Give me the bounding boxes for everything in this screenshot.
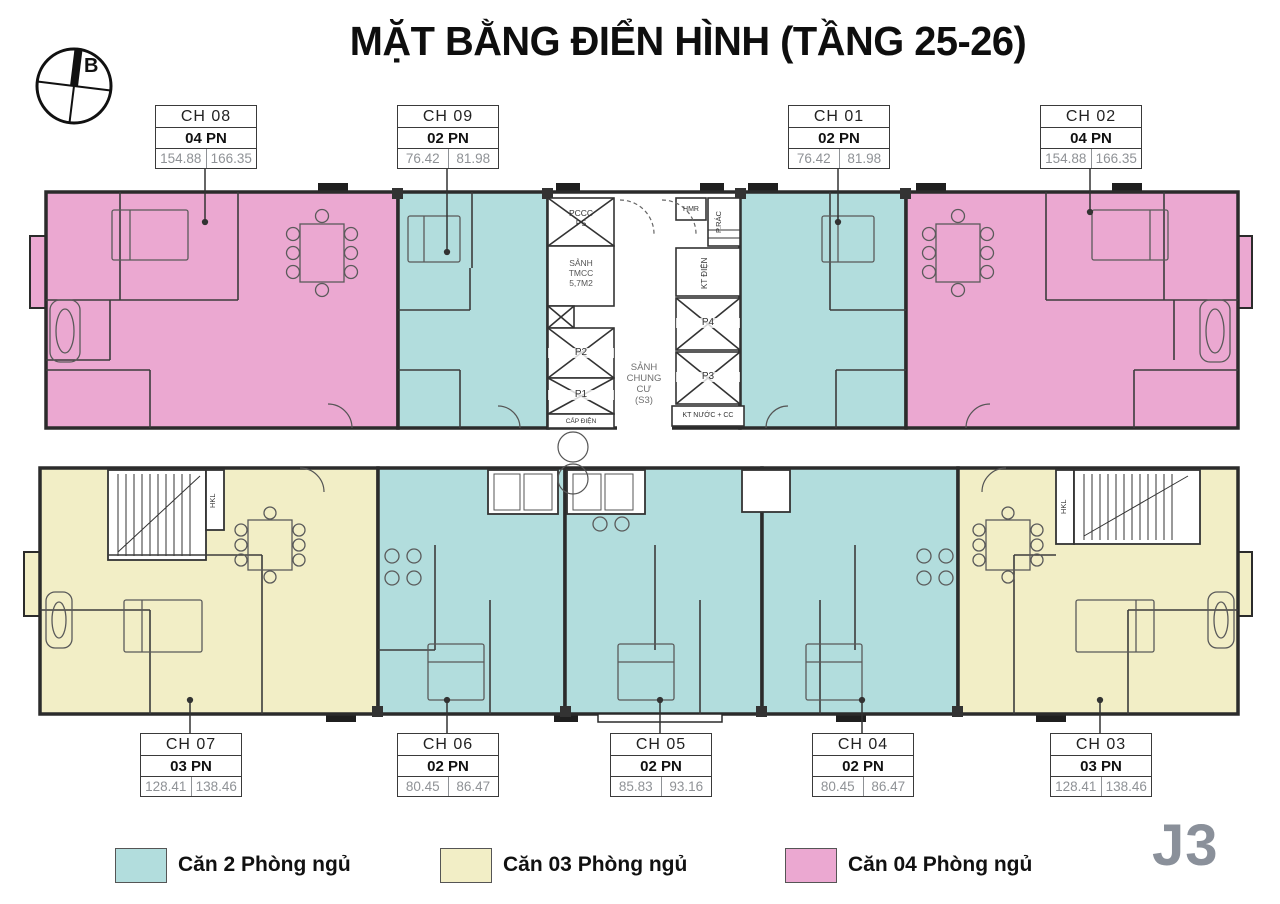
unit-areas: 128.41138.46 — [1051, 777, 1151, 796]
core-label-kt-nuoc: KT NƯỚC + CC — [672, 406, 744, 426]
page-title: MẶT BẰNG ĐIỂN HÌNH (TẦNG 25-26) — [114, 18, 1262, 65]
unit-bedrooms: 04 PN — [156, 128, 256, 149]
legend-label-2br: Căn 2 Phòng ngủ — [178, 848, 351, 882]
unit-id: CH 02 — [1041, 106, 1141, 128]
unit-bedrooms: 02 PN — [789, 128, 889, 149]
stair-label-right: HKL — [1059, 482, 1069, 532]
unit-areas: 154.88166.35 — [156, 149, 256, 168]
legend-label-3br: Căn 03 Phòng ngủ — [503, 848, 687, 882]
core-label-lift-p1: P1 — [548, 390, 614, 400]
unit-label-ch06: CH 06 02 PN 80.4586.47 — [397, 733, 499, 797]
core-label-hmr: HMR — [676, 205, 706, 215]
core-label-trash-room: P.RÁC — [714, 200, 724, 244]
core-label-cap-dien: CẤP ĐIỆN — [548, 417, 614, 427]
legend-swatch-4br — [785, 848, 837, 883]
unit-areas: 76.4281.98 — [398, 149, 498, 168]
core-label-lift-p4: P4 — [676, 318, 740, 328]
unit-label-ch03: CH 03 03 PN 128.41138.46 — [1050, 733, 1152, 797]
svg-text:B: B — [84, 55, 98, 77]
unit-id: CH 03 — [1051, 734, 1151, 756]
block-code-label: J3 — [1152, 812, 1219, 879]
core-label-lift-p2: P2 — [548, 348, 614, 358]
core-label-lift-p3: P3 — [676, 372, 740, 382]
unit-label-ch07: CH 07 03 PN 128.41138.46 — [140, 733, 242, 797]
unit-areas: 80.4586.47 — [398, 777, 498, 796]
unit-bedrooms: 02 PN — [813, 756, 913, 777]
unit-region-ch02 — [906, 192, 1238, 428]
unit-bedrooms: 04 PN — [1041, 128, 1141, 149]
unit-bedrooms: 03 PN — [141, 756, 241, 777]
unit-id: CH 06 — [398, 734, 498, 756]
unit-region-ch04 — [762, 468, 958, 714]
unit-bedrooms: 03 PN — [1051, 756, 1151, 777]
unit-label-ch08: CH 08 04 PN 154.88166.35 — [155, 105, 257, 169]
unit-id: CH 07 — [141, 734, 241, 756]
unit-label-ch04: CH 04 02 PN 80.4586.47 — [812, 733, 914, 797]
unit-areas: 128.41138.46 — [141, 777, 241, 796]
core-label-kt-dien: KT ĐIỆN — [700, 250, 710, 296]
legend-swatch-2br — [115, 848, 167, 883]
core-label-pccc-p5: PCCC P5 — [548, 208, 614, 228]
unit-id: CH 05 — [611, 734, 711, 756]
unit-label-ch02: CH 02 04 PN 154.88166.35 — [1040, 105, 1142, 169]
unit-id: CH 08 — [156, 106, 256, 128]
unit-label-ch09: CH 09 02 PN 76.4281.98 — [397, 105, 499, 169]
unit-label-ch05: CH 05 02 PN 85.8393.16 — [610, 733, 712, 797]
compass-north-icon: B — [28, 40, 120, 132]
core-label-fire-lobby: SẢNH TMCC 5,7M2 — [548, 258, 614, 288]
unit-bedrooms: 02 PN — [398, 128, 498, 149]
unit-bedrooms: 02 PN — [611, 756, 711, 777]
legend-swatch-3br — [440, 848, 492, 883]
stair-label-left: HKL — [208, 478, 218, 524]
floorplan-page: MẶT BẰNG ĐIỂN HÌNH (TẦNG 25-26) B CH 08 … — [0, 0, 1280, 904]
unit-label-ch01: CH 01 02 PN 76.4281.98 — [788, 105, 890, 169]
unit-areas: 85.8393.16 — [611, 777, 711, 796]
core-label-main-lobby: SẢNH CHUNG CƯ (S3) — [610, 362, 678, 406]
unit-id: CH 09 — [398, 106, 498, 128]
unit-areas: 154.88166.35 — [1041, 149, 1141, 168]
unit-id: CH 04 — [813, 734, 913, 756]
unit-areas: 76.4281.98 — [789, 149, 889, 168]
unit-id: CH 01 — [789, 106, 889, 128]
unit-region-ch08 — [46, 192, 398, 428]
legend-label-4br: Căn 04 Phòng ngủ — [848, 848, 1032, 882]
unit-areas: 80.4586.47 — [813, 777, 913, 796]
unit-bedrooms: 02 PN — [398, 756, 498, 777]
